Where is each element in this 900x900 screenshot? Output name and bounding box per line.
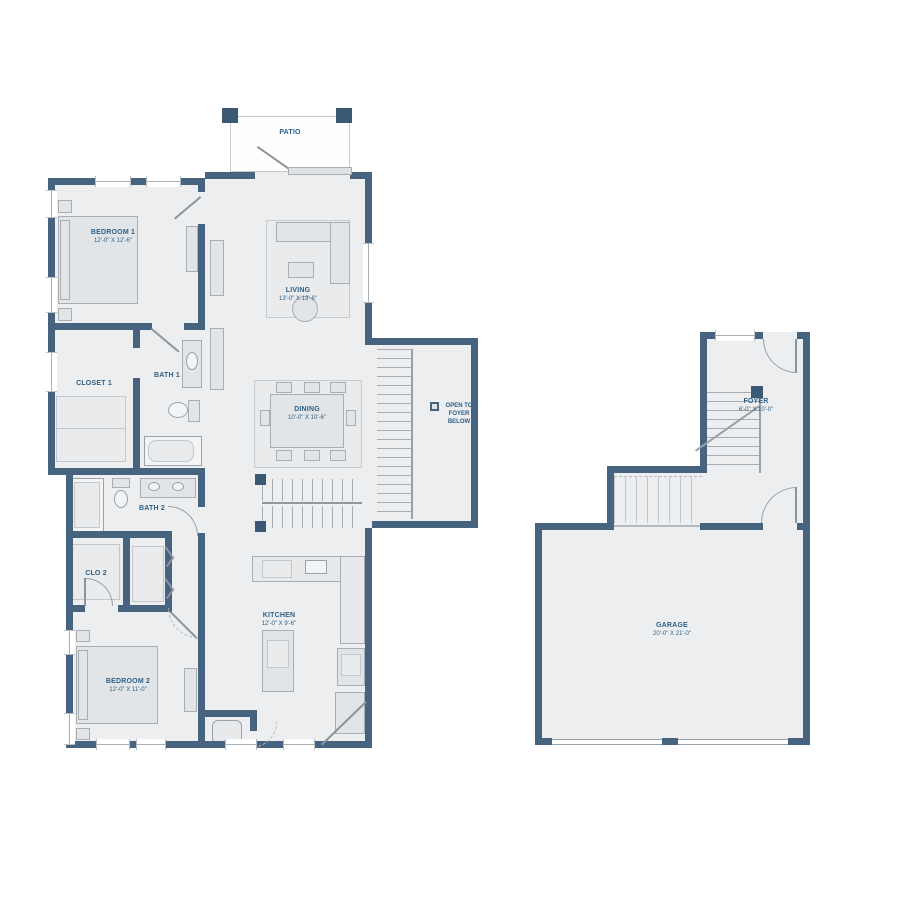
window [225,739,257,750]
room-label-bath1: BATH 1 [138,372,196,381]
wall [607,466,614,530]
stair-post [255,474,266,485]
wall [662,738,678,745]
toilet [168,402,188,418]
media-console [210,240,224,296]
window [715,330,755,341]
stairs-up [262,479,354,501]
stair-marker-icon [430,402,439,411]
dining-chair [276,450,292,461]
nightstand [76,630,90,642]
window [136,739,166,750]
nightstand [58,308,72,321]
toilet [112,478,130,488]
garage-door [552,739,662,745]
window [46,190,57,218]
wall [700,332,707,473]
room-name: CLOSET 1 [58,380,130,389]
stove [341,654,361,676]
room-label-living: LIVING 13'-0" X 13'-6" [258,287,338,303]
coffee-table [288,262,314,278]
closet-shelf [132,546,164,602]
wall [184,323,205,330]
room-label-bedroom2: BEDROOM 2 12'-0" X 11'-0" [82,678,174,694]
dresser [186,226,198,272]
room-name: KITCHEN [236,612,322,621]
stairs-up [262,506,354,528]
kitchen-island [267,640,289,668]
stairwell-treads [377,349,411,519]
floor-plan-canvas: PATIO [0,0,900,900]
patio-post [336,108,352,123]
room-label-kitchen: KITCHEN 12'-0" X 9'-6" [236,612,322,628]
room-dims: 10'-0" X 10'-6" [264,415,350,423]
dining-chair [330,450,346,461]
wall [535,523,542,745]
room-name: LIVING [258,287,338,296]
room-name: BEDROOM 1 [66,229,160,238]
wall [66,605,85,612]
dining-chair [304,450,320,461]
nightstand [76,728,90,740]
window [64,630,75,655]
stair-post [751,386,763,398]
dining-chair [304,382,320,393]
wall [198,608,205,748]
wall [471,338,478,528]
toilet [188,400,200,422]
patio-threshold [288,167,352,175]
room-name: DINING [264,406,350,415]
shower [74,482,100,528]
door-leaf [795,339,797,373]
room-dims: 6'-0" X 10'-0" [725,407,787,415]
wall [48,468,205,475]
wall [123,538,130,605]
kitchen-counter [340,556,365,644]
window [64,713,75,745]
room-dims: 13'-0" X 13'-6" [258,296,338,304]
room-name: FOYER [725,398,787,407]
wall [48,323,152,330]
wall [198,224,205,330]
garage-door [678,739,788,745]
room-label-bedroom1: BEDROOM 1 12'-0" X 12'-6" [66,229,160,245]
room-name: BATH 2 [120,505,184,514]
wall [535,738,552,745]
room-dims: 12'-0" X 9'-6" [236,621,322,629]
room-name: BEDROOM 2 [82,678,174,687]
window [146,176,181,187]
chaise [330,222,350,284]
room-label-dining: DINING 10'-0" X 10'-6" [264,406,350,422]
room-label-bath2: BATH 2 [120,505,184,514]
stair-post [255,521,266,532]
room-label-patio: PATIO [230,129,350,138]
sink [186,352,198,370]
wall [372,521,478,528]
sink [148,482,160,491]
wall [607,466,707,473]
closet-shelf [56,396,126,462]
sink [172,482,184,491]
wall [797,523,810,530]
window [363,243,374,303]
sink [305,560,327,574]
stair-edge-line [614,525,700,527]
room-dims: 12'-0" X 11'-0" [82,687,174,695]
dashed-stairs [614,476,702,523]
stair-rail [262,502,362,504]
media-console [210,328,224,390]
wall [118,605,172,612]
wall [788,738,810,745]
room-name: BATH 1 [138,372,196,381]
dining-chair [330,382,346,393]
wall [700,523,763,530]
wall [133,378,140,475]
stairwell-note: OPEN TO FOYER BELOW [442,402,476,426]
sofa [276,222,338,242]
patio-post [222,108,238,123]
room-name: CLO 2 [70,570,122,579]
room-dims: 20'-0" X 21'-0" [620,631,724,639]
door-leaf [84,578,86,606]
room-label-garage: GARAGE 20'-0" X 21'-0" [620,622,724,638]
nightstand [58,200,72,213]
wall [365,528,372,748]
room-label-foyer: FOYER 6'-0" X 10'-0" [725,398,787,414]
cooktop [262,560,292,578]
window [46,352,57,392]
room-name: GARAGE [620,622,724,631]
window [46,277,57,313]
dining-chair [276,382,292,393]
room-label-clo2: CLO 2 [70,570,122,579]
wall [198,178,205,192]
window [95,176,131,187]
stair-stringer [411,349,413,519]
wall [803,332,810,745]
door-leaf [795,487,797,523]
patio-deck [230,116,350,172]
wall [365,338,478,345]
window [96,739,130,750]
wall [205,710,257,717]
wall [198,533,205,608]
room-label-closet1: CLOSET 1 [58,380,130,389]
wall [198,475,205,507]
room-dims: 12'-0" X 12'-6" [66,238,160,246]
bathtub [148,440,194,462]
dresser [184,668,197,712]
wall [66,531,172,538]
closet-rod [56,428,126,429]
wall [535,523,614,530]
window [283,739,315,750]
wall [205,172,255,179]
room-name: PATIO [230,129,350,138]
wall [133,330,140,348]
